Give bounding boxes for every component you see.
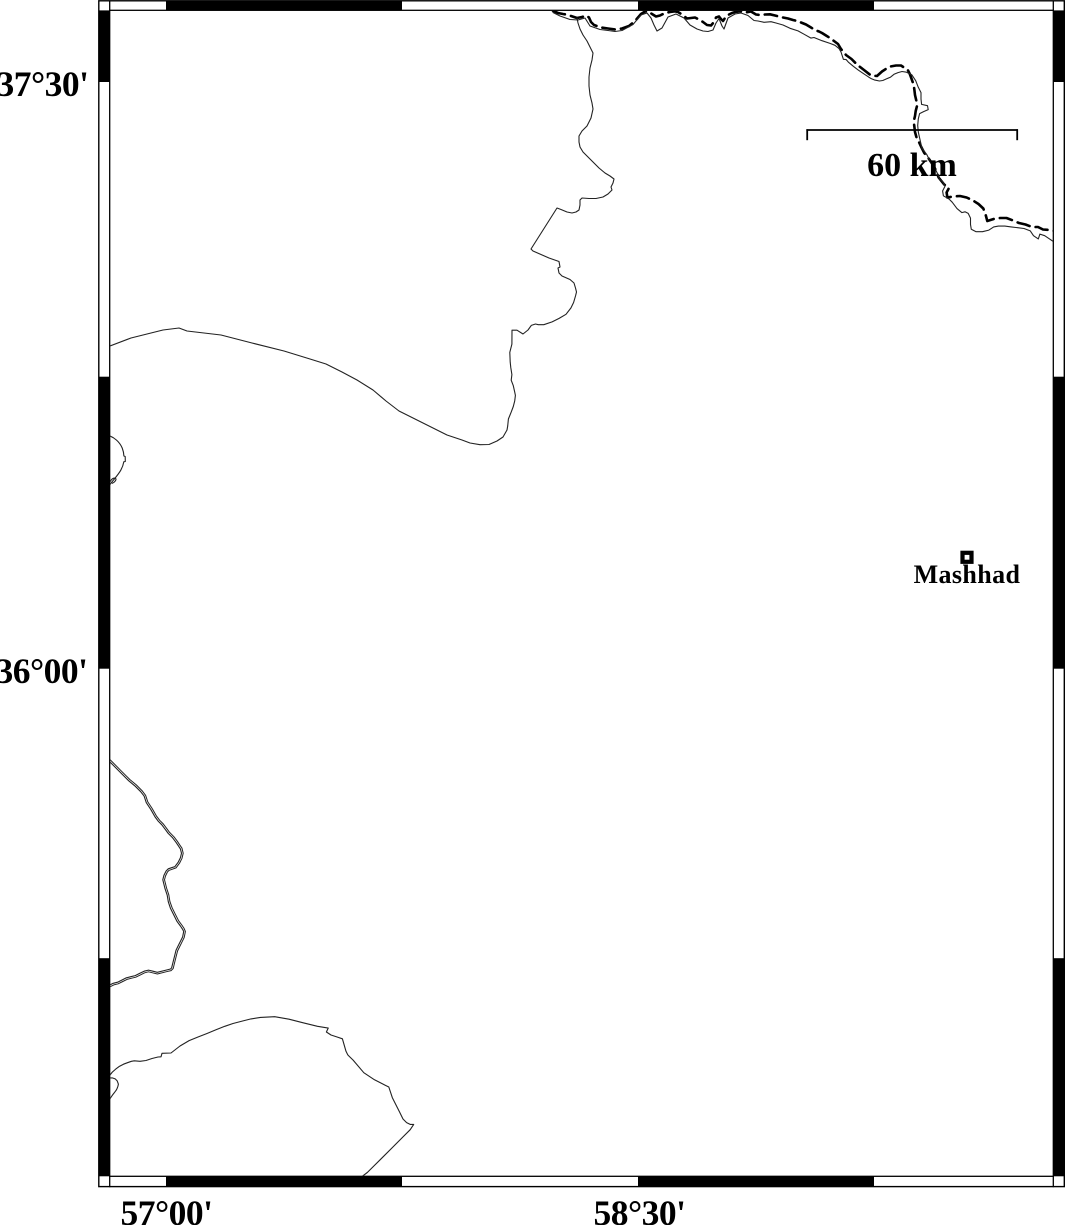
svg-text:Mashhad: Mashhad <box>914 560 1021 589</box>
svg-text:58°30': 58°30' <box>593 1193 685 1225</box>
svg-text:60 km: 60 km <box>867 147 957 184</box>
svg-text:36°00': 36°00' <box>0 651 88 691</box>
svg-text:57°00': 57°00' <box>120 1193 212 1225</box>
svg-text:37°30': 37°30' <box>0 64 89 104</box>
